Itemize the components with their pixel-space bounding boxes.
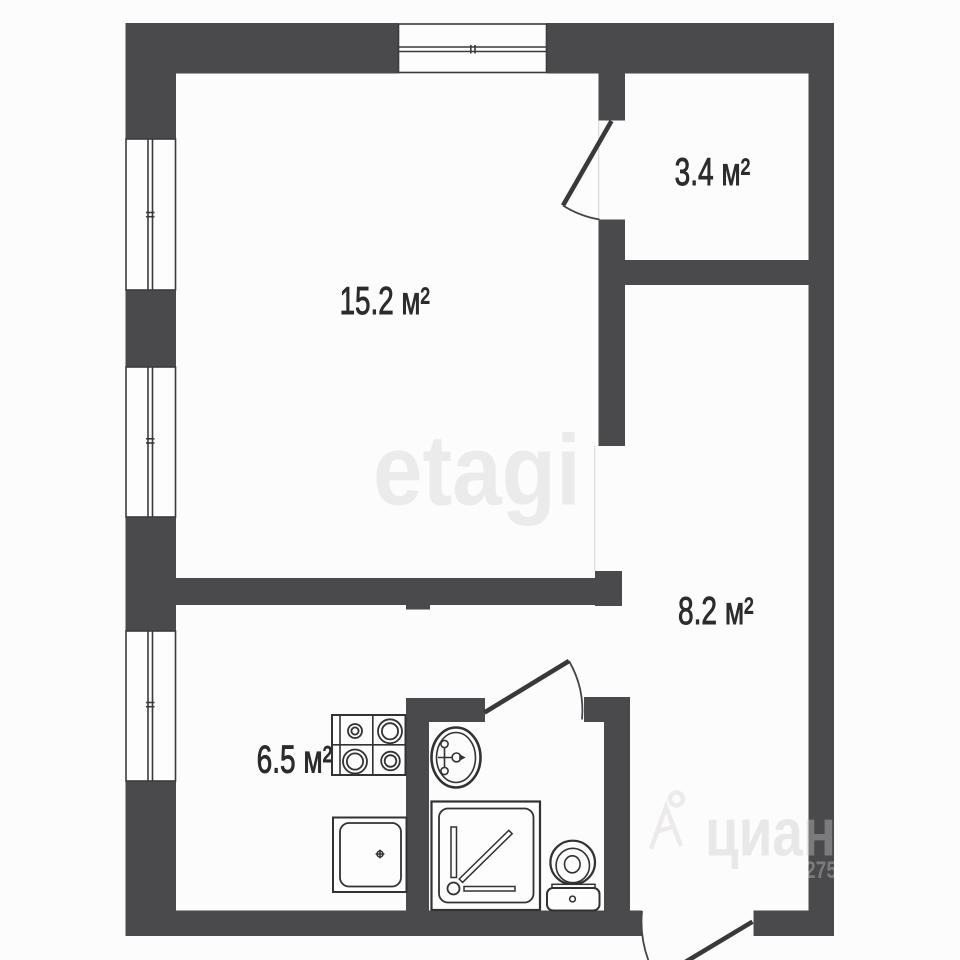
svg-text:15.2 м²: 15.2 м² <box>340 279 430 323</box>
svg-text:etagi: etagi <box>373 415 581 527</box>
svg-text:275: 275 <box>805 856 837 884</box>
svg-text:6.5 м²: 6.5 м² <box>257 738 332 782</box>
svg-text:3.4 м²: 3.4 м² <box>675 151 750 195</box>
svg-text:8.2 м²: 8.2 м² <box>678 590 753 634</box>
